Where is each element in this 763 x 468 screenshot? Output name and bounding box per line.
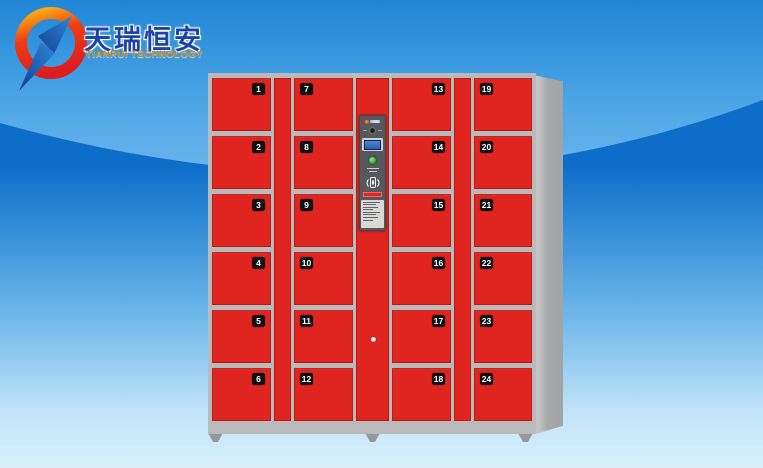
door-number-badge: 11 (300, 315, 313, 327)
locker-door-22[interactable]: 22 (474, 252, 532, 305)
door-number-badge: 5 (252, 315, 265, 327)
status-led (369, 157, 376, 164)
door-number-badge: 20 (480, 141, 493, 153)
panel-caption (367, 168, 379, 172)
door-number-badge: 7 (300, 83, 313, 95)
cabinet-foot (365, 434, 380, 442)
door-number-badge: 8 (300, 141, 313, 153)
brand-name-en: TIANRUI TECHNOLOGY (86, 49, 203, 60)
locker-door-3[interactable]: 3 (212, 194, 271, 247)
locker-door-16[interactable]: 16 (392, 252, 451, 305)
door-number-badge: 19 (480, 83, 493, 95)
door-column-4: 13 14 15 16 17 18 (392, 78, 451, 421)
locker-door-19[interactable]: 19 (474, 78, 532, 131)
main-control-door[interactable] (356, 78, 389, 421)
locker-door-14[interactable]: 14 (392, 136, 451, 189)
door-number-badge: 16 (432, 257, 445, 269)
door-number-badge: 23 (480, 315, 493, 327)
panel-red-button[interactable] (363, 192, 382, 197)
door-number-badge: 9 (300, 199, 313, 211)
main-door-keyhole (371, 337, 376, 342)
door-number-badge: 3 (252, 199, 265, 211)
locker-door-12[interactable]: 12 (294, 368, 353, 421)
door-number-badge: 15 (432, 199, 445, 211)
locker-door-21[interactable]: 21 (474, 194, 532, 247)
panel-keyhole-eye (363, 126, 382, 134)
locker-door-5[interactable]: 5 (212, 310, 271, 363)
door-number-badge: 22 (480, 257, 493, 269)
locker-door-15[interactable]: 15 (392, 194, 451, 247)
door-number-badge: 4 (252, 257, 265, 269)
locker-door-13[interactable]: 13 (392, 78, 451, 131)
panel-screen[interactable] (362, 138, 383, 151)
scene: 天瑞恒安 TIANRUI TECHNOLOGY 1 2 3 4 5 6 7 8 … (0, 0, 763, 468)
locker-door-6[interactable]: 6 (212, 368, 271, 421)
door-number-badge: 18 (432, 373, 445, 385)
locker-door-23[interactable]: 23 (474, 310, 532, 363)
locker-door-9[interactable]: 9 (294, 194, 353, 247)
lcd-display (364, 140, 381, 150)
door-number-badge: 10 (300, 257, 313, 269)
door-number-badge: 24 (480, 373, 493, 385)
cabinet-foot (208, 434, 223, 442)
door-number-badge: 13 (432, 83, 445, 95)
locker-door-24[interactable]: 24 (474, 368, 532, 421)
locker-door-18[interactable]: 18 (392, 368, 451, 421)
cabinet-side-panel (536, 74, 563, 442)
door-number-badge: 21 (480, 199, 493, 211)
door-number-badge: 6 (252, 373, 265, 385)
card-reader[interactable] (364, 176, 382, 190)
frame-post-left (274, 78, 291, 421)
control-panel (359, 115, 386, 231)
locker-door-8[interactable]: 8 (294, 136, 353, 189)
locker-door-7[interactable]: 7 (294, 78, 353, 131)
locker-cabinet: 1 2 3 4 5 6 7 8 9 10 11 12 (208, 73, 536, 434)
door-column-2: 7 8 9 10 11 12 (294, 78, 353, 421)
door-number-badge: 12 (300, 373, 313, 385)
door-column-1: 1 2 3 4 5 6 (212, 78, 271, 421)
door-number-badge: 2 (252, 141, 265, 153)
door-column-5: 19 20 21 22 23 24 (474, 78, 532, 421)
cabinet-foot (518, 434, 533, 442)
door-number-badge: 1 (252, 83, 265, 95)
locker-door-10[interactable]: 10 (294, 252, 353, 305)
locker-door-20[interactable]: 20 (474, 136, 532, 189)
locker-door-1[interactable]: 1 (212, 78, 271, 131)
locker-door-17[interactable]: 17 (392, 310, 451, 363)
instruction-label (361, 200, 384, 228)
door-number-badge: 17 (432, 315, 445, 327)
keyhole-icon (369, 127, 376, 134)
frame-post-right (454, 78, 471, 421)
panel-brand-mark (365, 119, 380, 124)
locker-door-4[interactable]: 4 (212, 252, 271, 305)
card-reader-icon (364, 176, 382, 190)
locker-door-2[interactable]: 2 (212, 136, 271, 189)
door-number-badge: 14 (432, 141, 445, 153)
locker-door-11[interactable]: 11 (294, 310, 353, 363)
